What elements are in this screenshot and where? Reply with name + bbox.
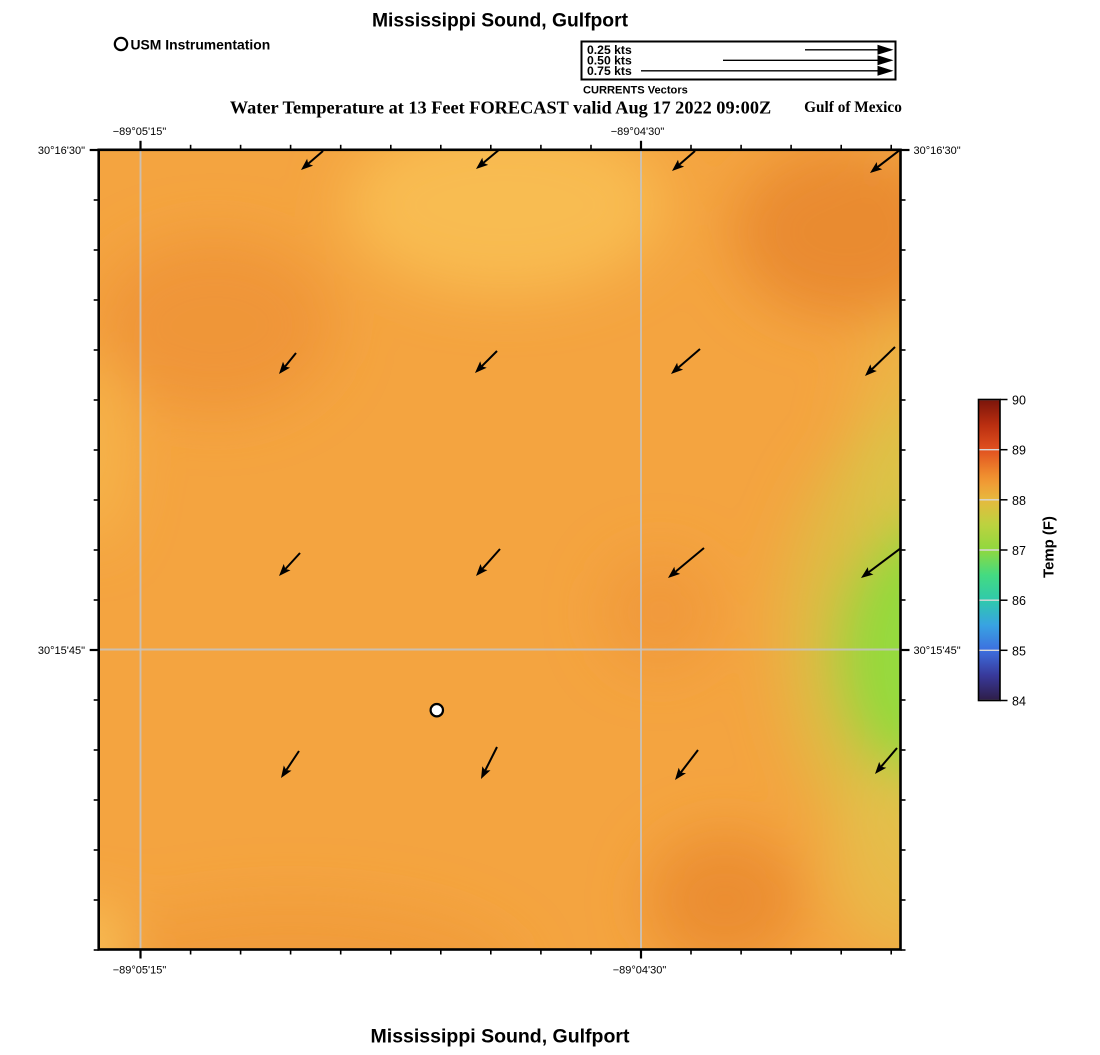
svg-text:86: 86 (1012, 594, 1026, 608)
svg-text:Temp (F): Temp (F) (1042, 516, 1058, 578)
svg-text:CURRENTS Vectors: CURRENTS Vectors (583, 85, 688, 97)
svg-text:30°16'30": 30°16'30" (38, 145, 85, 157)
svg-text:88: 88 (1012, 494, 1026, 508)
svg-text:−89°04'30": −89°04'30" (613, 965, 667, 977)
svg-text:30°15'45": 30°15'45" (914, 645, 961, 657)
svg-text:30°15'45": 30°15'45" (38, 645, 85, 657)
svg-text:Water Temperature at 13 Feet F: Water Temperature at 13 Feet FORECAST va… (230, 98, 771, 118)
svg-text:−89°05'15": −89°05'15" (113, 965, 167, 977)
svg-text:0.75 kts: 0.75 kts (587, 64, 632, 78)
svg-text:30°16'30": 30°16'30" (914, 145, 961, 157)
svg-text:USM Instrumentation: USM Instrumentation (131, 37, 271, 53)
svg-text:−89°05'15": −89°05'15" (113, 126, 167, 138)
svg-text:Mississippi Sound, Gulfport: Mississippi Sound, Gulfport (371, 1026, 630, 1048)
svg-text:87: 87 (1012, 544, 1026, 558)
svg-text:84: 84 (1012, 695, 1026, 709)
svg-text:90: 90 (1012, 394, 1026, 408)
svg-text:Mississippi Sound, Gulfport: Mississippi Sound, Gulfport (372, 11, 629, 32)
svg-text:−89°04'30": −89°04'30" (611, 126, 665, 138)
svg-text:89: 89 (1012, 444, 1026, 458)
svg-text:85: 85 (1012, 644, 1026, 658)
svg-text:Gulf of Mexico: Gulf of Mexico (804, 99, 902, 116)
